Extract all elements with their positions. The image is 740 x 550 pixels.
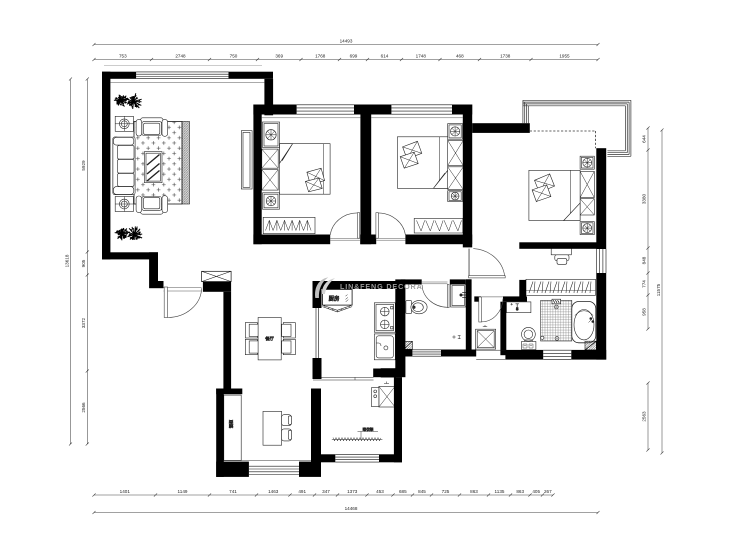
svg-text:1463: 1463 <box>268 489 279 494</box>
svg-text:405: 405 <box>532 489 540 494</box>
svg-text:14468: 14468 <box>345 506 358 511</box>
svg-text:750: 750 <box>230 54 238 59</box>
svg-text:1401: 1401 <box>120 489 131 494</box>
svg-text:LIN&FENG DECORA: LIN&FENG DECORA <box>340 282 423 291</box>
svg-text:1955: 1955 <box>559 54 570 59</box>
svg-text:845: 845 <box>418 489 426 494</box>
svg-text:905: 905 <box>81 259 86 267</box>
svg-text:863: 863 <box>516 489 524 494</box>
svg-text:11575: 11575 <box>656 283 661 296</box>
svg-text:3380: 3380 <box>642 193 647 204</box>
svg-text:13618: 13618 <box>65 254 70 267</box>
svg-text:1373: 1373 <box>347 489 358 494</box>
svg-text:741: 741 <box>229 489 237 494</box>
svg-text:614: 614 <box>381 54 389 59</box>
svg-text:14493: 14493 <box>340 39 353 44</box>
svg-text:1135: 1135 <box>495 489 505 494</box>
svg-text:753: 753 <box>119 54 127 59</box>
svg-text:267: 267 <box>544 489 552 494</box>
svg-text:1738: 1738 <box>500 54 511 59</box>
svg-text:2748: 2748 <box>175 54 186 59</box>
svg-text:774: 774 <box>642 280 647 288</box>
svg-text:848: 848 <box>642 256 647 264</box>
svg-text:酒柜: 酒柜 <box>228 420 235 428</box>
svg-text:958: 958 <box>642 308 647 316</box>
svg-text:1748: 1748 <box>416 54 427 59</box>
svg-text:1149: 1149 <box>178 489 188 494</box>
svg-text:725: 725 <box>442 489 450 494</box>
svg-text:2566: 2566 <box>81 402 86 413</box>
svg-text:699: 699 <box>350 54 358 59</box>
svg-text:5929: 5929 <box>81 160 86 171</box>
svg-text:3372: 3372 <box>81 317 86 328</box>
svg-text:453: 453 <box>376 489 384 494</box>
svg-text:468: 468 <box>456 54 464 59</box>
svg-text:863: 863 <box>470 489 478 494</box>
svg-text:厨房: 厨房 <box>329 294 340 302</box>
svg-text:餐厅: 餐厅 <box>265 335 273 342</box>
svg-text:347: 347 <box>322 489 330 494</box>
svg-text:2563: 2563 <box>642 411 647 422</box>
svg-text:369: 369 <box>275 54 283 59</box>
svg-text:491: 491 <box>298 489 306 494</box>
svg-text:685: 685 <box>399 489 407 494</box>
svg-text:1768: 1768 <box>315 54 326 59</box>
svg-text:晾衣架: 晾衣架 <box>363 427 374 432</box>
svg-text:644: 644 <box>642 135 647 143</box>
